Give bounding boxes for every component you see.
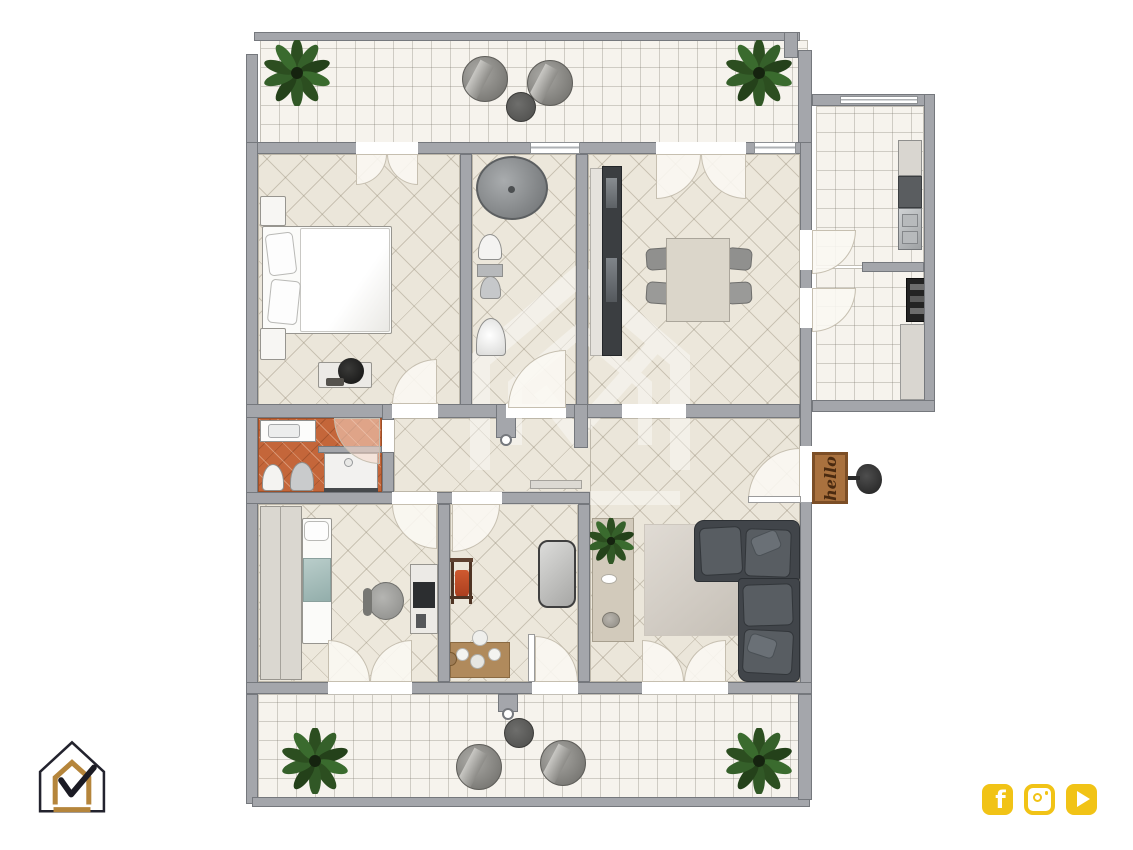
nursery-living-wall — [578, 504, 590, 682]
bathtub-drain — [508, 186, 515, 193]
bed-blanket — [303, 558, 331, 602]
annex-wall-right — [924, 94, 935, 412]
nursery-balcony-door-gap — [532, 682, 578, 694]
office-nursery-wall — [438, 504, 450, 682]
nightstand — [260, 196, 286, 226]
high-chair-bar — [450, 558, 473, 562]
column-cap — [500, 434, 512, 446]
cooktop-stove — [898, 176, 922, 208]
laundry-door-gap — [800, 288, 812, 328]
bed-duvet — [300, 228, 390, 332]
bed-pillow — [265, 231, 298, 276]
facebook-glyph: f — [982, 785, 1019, 815]
computer-monitor — [413, 582, 435, 608]
balcony-parapet — [246, 54, 258, 150]
bathroom-window — [530, 142, 580, 154]
kitchen-counter — [898, 140, 922, 176]
wardrobe-divider — [280, 506, 281, 680]
office-door-gap — [392, 492, 437, 504]
baby-cot — [538, 540, 576, 608]
doormat-text: hello — [821, 456, 840, 501]
exterior-wall-right — [800, 142, 812, 690]
entrance-door-leaf — [748, 496, 801, 503]
sink-basin — [902, 231, 918, 244]
potted-plant — [726, 728, 792, 794]
nursery-door-gap — [452, 492, 502, 504]
dresser-tray — [326, 378, 344, 386]
entrance-doormat: hello — [812, 452, 848, 504]
pc-tower — [416, 614, 426, 628]
bedroom-french-door-gap — [356, 142, 418, 154]
balcony-side-table — [504, 718, 534, 748]
annex-wall-bottom — [812, 400, 935, 412]
console-plant — [588, 516, 634, 566]
kitchen-laundry-divider — [862, 262, 924, 272]
bedroom-bathroom-wall — [460, 154, 472, 408]
entrance-door-gap — [800, 446, 812, 502]
instagram-icon — [1024, 784, 1055, 815]
floorplan-canvas: hello f — [0, 0, 1133, 850]
agency-house-logo — [30, 734, 114, 818]
high-chair-bar — [450, 596, 473, 599]
decor-vase — [602, 612, 620, 628]
balcony-parapet — [252, 797, 810, 807]
sink-basin — [902, 214, 918, 227]
kitchen-window — [840, 96, 918, 104]
plush-toy — [456, 648, 469, 661]
facebook-icon: f — [982, 784, 1013, 815]
balcony-parapet — [798, 694, 812, 800]
sink-basin — [268, 424, 300, 438]
potted-plant — [282, 728, 348, 794]
cabinet-appliance — [606, 258, 617, 302]
balcony-parapet — [246, 694, 258, 804]
balcony-chair — [540, 740, 586, 786]
shower-drain — [344, 458, 353, 467]
bathroom2-wall — [382, 452, 394, 492]
social-icons-bar: f — [982, 784, 1097, 815]
wardrobe — [260, 506, 302, 680]
bed-pillow — [304, 521, 329, 541]
plush-toy — [470, 654, 485, 669]
potted-plant — [264, 40, 330, 106]
hallway-wall-stub — [574, 404, 588, 448]
kitchen-door-gap — [800, 230, 812, 270]
office-balcony-door-gap — [328, 682, 412, 694]
plush-toy — [472, 630, 488, 646]
balcony-chair — [462, 56, 508, 102]
youtube-icon — [1066, 784, 1097, 815]
living-balcony-door-gap — [642, 682, 728, 694]
balcony-side-table — [506, 92, 536, 122]
bathroom-dining-wall — [576, 154, 588, 408]
potted-plant — [726, 40, 792, 106]
balcony-parapet — [254, 32, 800, 41]
door-knocker-arm — [848, 476, 860, 480]
nursery-balcony-door-leaf — [528, 634, 535, 682]
youtube-play-triangle — [1077, 791, 1090, 807]
bedroom-door-gap — [392, 404, 438, 418]
sofa-cushion — [742, 583, 793, 627]
dining-opening — [622, 404, 686, 418]
hallway-bench — [530, 480, 582, 489]
dining-french-door-gap — [656, 142, 746, 154]
dining-window — [754, 142, 796, 154]
office-chair-back — [363, 588, 372, 616]
dining-table — [666, 238, 730, 322]
balcony-chair — [456, 744, 502, 790]
decor-dish — [601, 574, 617, 584]
instagram-flash-dot — [1045, 791, 1049, 795]
plush-toy — [488, 648, 501, 661]
cabinet-appliance — [606, 178, 617, 208]
bed-pillow — [267, 279, 301, 326]
office-chair — [368, 582, 404, 620]
nightstand — [260, 328, 286, 360]
high-chair-seat — [455, 570, 469, 598]
sofa-cushion — [699, 526, 743, 576]
instagram-lens — [1033, 793, 1042, 802]
balcony-parapet — [798, 50, 812, 150]
